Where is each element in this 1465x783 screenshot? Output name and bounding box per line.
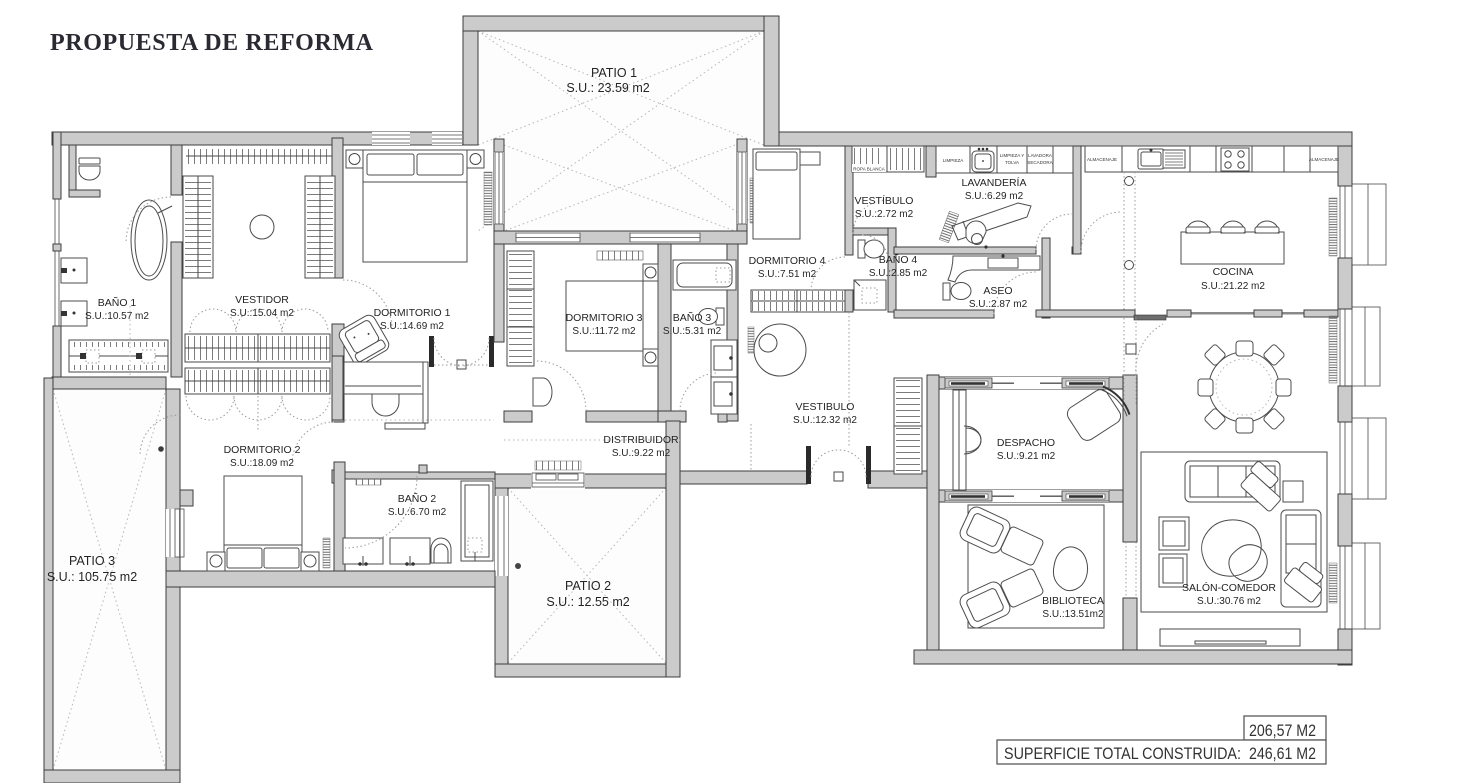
svg-text:DESPACHO: DESPACHO — [997, 437, 1055, 449]
svg-text:ALMACENAJE: ALMACENAJE — [1309, 157, 1339, 162]
svg-text:ASEO: ASEO — [983, 285, 1012, 297]
svg-text:S.U.:2.87 m2: S.U.:2.87 m2 — [969, 299, 1028, 310]
svg-text:PATIO 2: PATIO 2 — [565, 579, 611, 593]
svg-text:LIMPIEZA Y: LIMPIEZA Y — [1000, 153, 1024, 158]
svg-text:S.U.:10.57 m2: S.U.:10.57 m2 — [85, 311, 149, 322]
svg-text:S.U.:15.04 m2: S.U.:15.04 m2 — [230, 308, 294, 319]
svg-text:S.U.:6.29 m2: S.U.:6.29 m2 — [965, 191, 1024, 202]
svg-text:SUPERFICIE TOTAL CONSTRUIDA:: SUPERFICIE TOTAL CONSTRUIDA: — [1004, 745, 1241, 763]
svg-text:ROPA BLANCA: ROPA BLANCA — [853, 167, 884, 172]
svg-text:S.U.:9.22 m2: S.U.:9.22 m2 — [612, 448, 671, 459]
svg-text:VESTIDOR: VESTIDOR — [235, 294, 289, 306]
svg-text:S.U.:12.32 m2: S.U.:12.32 m2 — [793, 415, 857, 426]
svg-text:BIBLIOTECA: BIBLIOTECA — [1042, 595, 1104, 607]
svg-text:S.U.:18.09 m2: S.U.:18.09 m2 — [230, 458, 294, 469]
svg-text:S.U.:5.31 m2: S.U.:5.31 m2 — [663, 326, 722, 337]
svg-text:S.U.:13.51m2: S.U.:13.51m2 — [1042, 609, 1104, 620]
svg-text:DORMITORIO 1: DORMITORIO 1 — [374, 307, 451, 319]
svg-text:BAÑO 2: BAÑO 2 — [398, 492, 437, 505]
svg-text:ALMACENAJE: ALMACENAJE — [1087, 157, 1117, 162]
svg-text:COCINA: COCINA — [1213, 266, 1254, 278]
svg-text:S.U.: 23.59 m2: S.U.: 23.59 m2 — [566, 81, 649, 95]
svg-text:S.U.:9.21 m2: S.U.:9.21 m2 — [997, 451, 1056, 462]
svg-text:BAÑO 1: BAÑO 1 — [98, 296, 137, 309]
svg-text:LAVANDERÍA: LAVANDERÍA — [962, 176, 1027, 189]
svg-text:TOLVA: TOLVA — [1005, 160, 1019, 165]
svg-text:S.U.:14.69 m2: S.U.:14.69 m2 — [380, 321, 444, 332]
svg-text:SECADORA: SECADORA — [1027, 160, 1052, 165]
svg-text:PATIO 3: PATIO 3 — [69, 554, 115, 568]
svg-text:S.U.:2.72 m2: S.U.:2.72 m2 — [855, 209, 914, 220]
svg-text:BAÑO 4: BAÑO 4 — [879, 253, 918, 266]
svg-text:PATIO 1: PATIO 1 — [591, 66, 637, 80]
svg-text:S.U.:6.70 m2: S.U.:6.70 m2 — [388, 507, 447, 518]
svg-text:S.U.:11.72 m2: S.U.:11.72 m2 — [572, 326, 636, 337]
svg-text:S.U.:21.22 m2: S.U.:21.22 m2 — [1201, 281, 1265, 292]
svg-text:DORMITORIO 3: DORMITORIO 3 — [566, 312, 643, 324]
svg-text:S.U.:7.51 m2: S.U.:7.51 m2 — [758, 269, 817, 280]
svg-text:246,61 M2: 246,61 M2 — [1249, 745, 1316, 763]
svg-text:LIMPIEZA: LIMPIEZA — [943, 158, 964, 163]
svg-text:SALÓN-COMEDOR: SALÓN-COMEDOR — [1182, 581, 1276, 594]
svg-text:S.U.: 105.75 m2: S.U.: 105.75 m2 — [47, 570, 137, 584]
svg-text:DORMITORIO 2: DORMITORIO 2 — [224, 444, 301, 456]
svg-text:S.U.: 12.55 m2: S.U.: 12.55 m2 — [546, 595, 629, 609]
svg-text:PROPUESTA DE REFORMA: PROPUESTA DE REFORMA — [50, 30, 374, 56]
svg-text:BAÑO 3: BAÑO 3 — [673, 311, 712, 324]
svg-text:206,57 M2: 206,57 M2 — [1249, 722, 1316, 740]
svg-text:LAVADORA: LAVADORA — [1028, 153, 1052, 158]
svg-text:S.U.:2.85 m2: S.U.:2.85 m2 — [869, 268, 928, 279]
svg-text:DORMITORIO 4: DORMITORIO 4 — [749, 255, 826, 267]
svg-text:VESTIBULO: VESTIBULO — [796, 401, 855, 413]
svg-text:DISTRIBUIDOR: DISTRIBUIDOR — [603, 434, 679, 446]
svg-text:S.U.:30.76 m2: S.U.:30.76 m2 — [1197, 596, 1261, 607]
svg-text:VESTÍBULO: VESTÍBULO — [855, 194, 914, 207]
